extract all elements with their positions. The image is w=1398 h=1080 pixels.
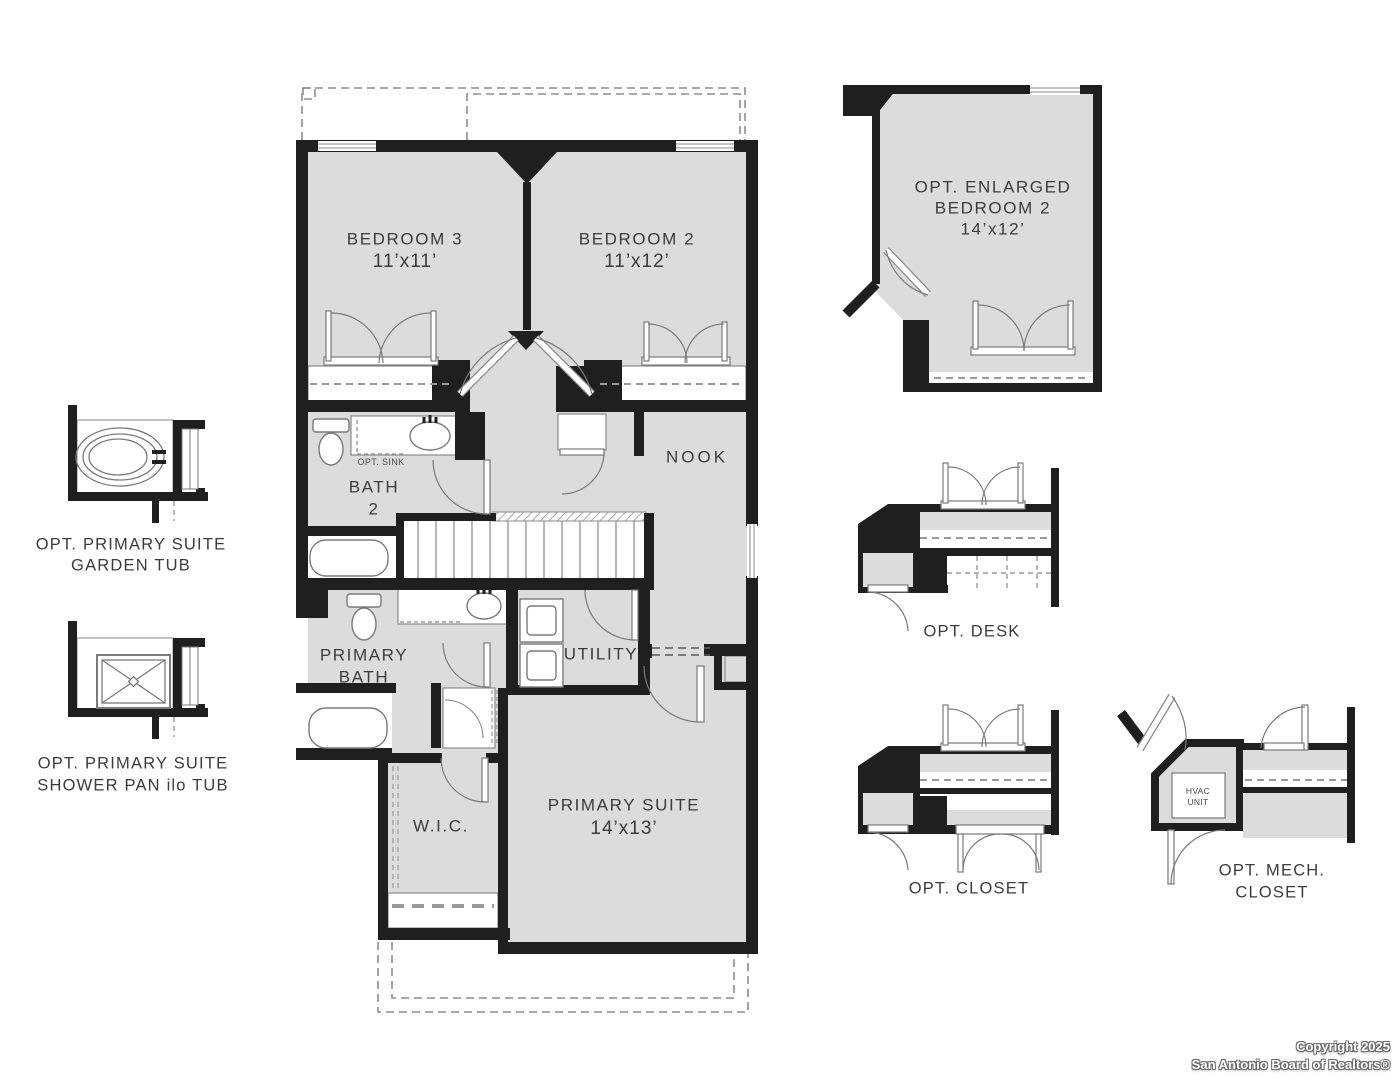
option-shower-pan-diagram [68,621,208,739]
stair-railing [492,512,646,521]
enlarged-bedroom2-window-icon [1030,84,1080,95]
option-enlarged-bedroom2-diagram [843,84,1102,392]
hvac-unit-box [1172,773,1225,818]
option-mech-closet-diagram [1121,696,1355,884]
stairs [398,512,648,580]
bedroom3-window-icon [318,141,376,151]
desk-side-shelf [863,553,913,587]
bath2-tub-icon [310,540,388,576]
roof-dashed-outline [302,88,745,140]
option-desk-diagram [858,463,1059,631]
floorplan-drawing [0,0,1398,1080]
option-garden-tub-diagram [68,405,208,523]
shower-pan-window-icon [182,647,198,705]
garden-tub-window-icon [182,429,198,489]
main-plan [296,88,758,1012]
closet-side-shelf [863,793,913,825]
nook-window-icon [747,524,757,578]
floorplan-canvas: BEDROOM 3 11’x11’ BEDROOM 2 11’x12’ NOOK… [0,0,1398,1080]
copyright-line1: Copyright 2025 [1192,1038,1390,1056]
desk-dashed-outline [947,556,1052,592]
copyright-notice: Copyright 2025 San Antonio Board of Real… [1192,1038,1390,1074]
bedroom2-window-icon [676,141,734,151]
option-closet-diagram [858,705,1059,872]
copyright-line2: San Antonio Board of Realtors® [1192,1056,1390,1074]
primary-tub-icon [309,708,387,748]
